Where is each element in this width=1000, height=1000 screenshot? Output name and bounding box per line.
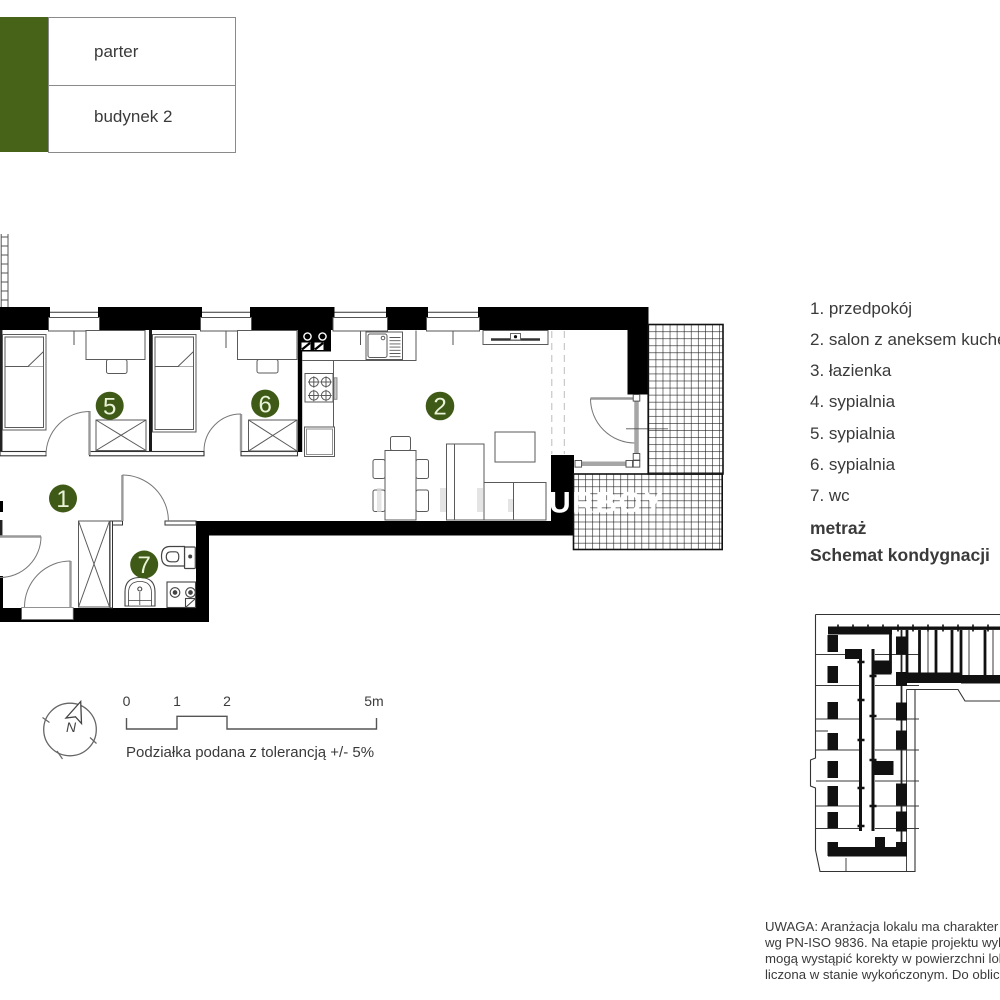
svg-text:1: 1 bbox=[56, 486, 69, 513]
svg-text:7: 7 bbox=[138, 552, 151, 579]
svg-text:2: 2 bbox=[433, 394, 446, 421]
svg-text:1: 1 bbox=[173, 693, 181, 709]
svg-text:5: 5 bbox=[103, 393, 116, 420]
svg-text:6: 6 bbox=[259, 391, 272, 418]
svg-text:5m: 5m bbox=[364, 693, 383, 709]
svg-text:2: 2 bbox=[223, 693, 231, 709]
svg-text:URBOY: URBOY bbox=[549, 487, 665, 520]
svg-text:N: N bbox=[66, 719, 77, 735]
svg-text:0: 0 bbox=[123, 693, 131, 709]
